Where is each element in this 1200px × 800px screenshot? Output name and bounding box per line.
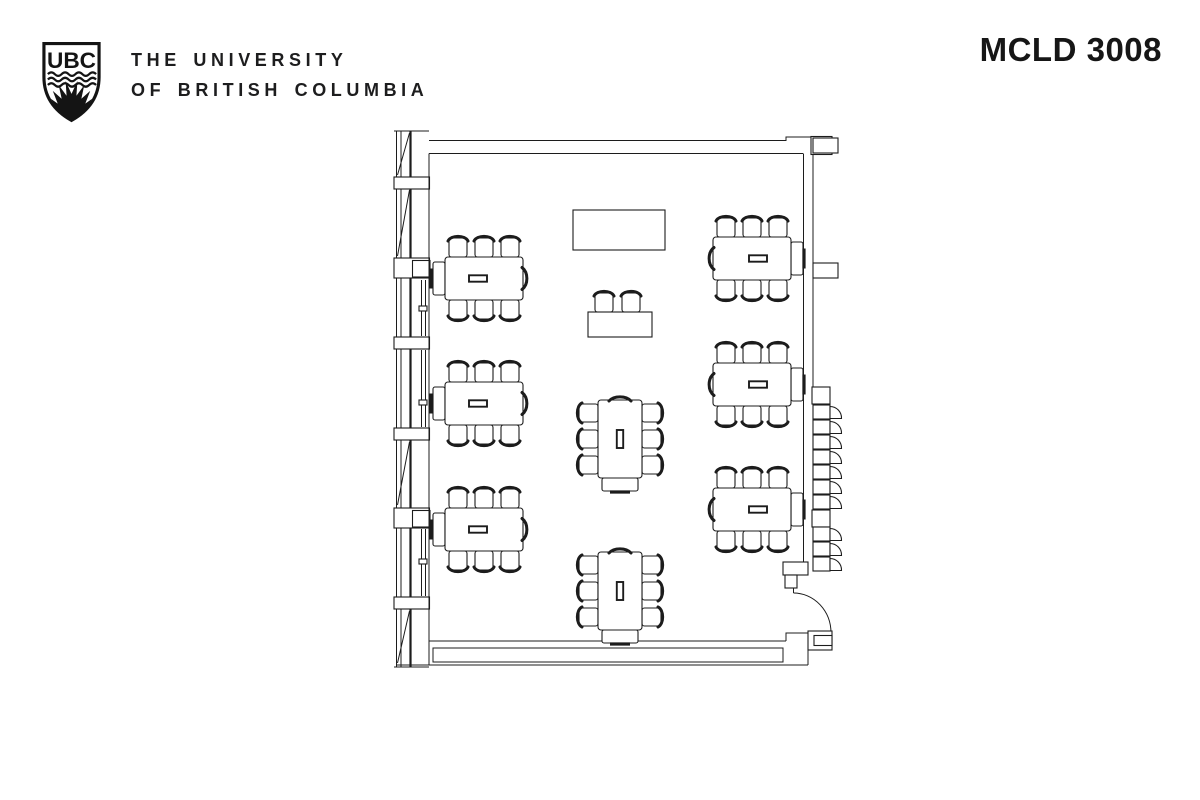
grommet: [469, 526, 487, 532]
chair: [768, 467, 788, 488]
chair: [474, 236, 494, 257]
chair: [500, 300, 520, 321]
chair: [448, 300, 468, 321]
door-threshold: [814, 636, 832, 646]
chair: [742, 531, 762, 552]
logo-monogram: UBC: [47, 48, 96, 73]
entry-door: [783, 562, 832, 650]
chair: [716, 406, 736, 427]
wall-box: [812, 387, 830, 404]
table-right-2: [709, 342, 804, 426]
window-wall: [394, 131, 430, 667]
column: [813, 263, 838, 278]
chair: [642, 429, 663, 449]
table-left-1: [431, 236, 527, 320]
window-operator-box: [413, 511, 431, 528]
chair: [474, 361, 494, 382]
wall-seat: [813, 480, 830, 494]
chair: [642, 555, 663, 575]
table-left-3: [431, 487, 527, 571]
chair: [474, 551, 494, 572]
lectern: [573, 210, 665, 250]
wall-seat: [813, 435, 830, 449]
chair: [742, 280, 762, 301]
grommet: [749, 381, 767, 387]
grommet: [469, 400, 487, 406]
grommet: [749, 255, 767, 261]
grommet: [617, 582, 623, 600]
chair: [742, 406, 762, 427]
chair: [742, 342, 762, 363]
chair: [742, 467, 762, 488]
chair: [642, 581, 663, 601]
wall-seat: [813, 557, 830, 571]
chair: [716, 342, 736, 363]
chair: [716, 216, 736, 237]
table-center-1: [577, 397, 662, 492]
chair: [577, 555, 598, 575]
grommet: [617, 430, 623, 448]
wall-seat: [813, 495, 830, 509]
chair: [500, 361, 520, 382]
chair: [577, 429, 598, 449]
wall-seat-swing: [830, 544, 842, 556]
page: UBC THE UNIVERSITY OF BRITISH COLUMBIA M…: [0, 0, 1200, 800]
chair: [642, 455, 663, 475]
chair: [448, 425, 468, 446]
chair: [500, 487, 520, 508]
chair: [768, 216, 788, 237]
chair: [448, 487, 468, 508]
table-left-2: [431, 361, 527, 445]
chair: [642, 403, 663, 423]
university-name-line2: OF BRITISH COLUMBIA: [131, 75, 428, 105]
chair: [768, 342, 788, 363]
wall-seat-swing: [830, 467, 842, 479]
chair: [448, 361, 468, 382]
chair: [768, 280, 788, 301]
chair: [594, 291, 614, 312]
wall-seat: [813, 527, 830, 541]
wall-box: [812, 510, 830, 527]
grommet: [469, 275, 487, 281]
floor-plan: [390, 125, 850, 675]
furniture-layer: [431, 210, 804, 644]
wall-mounted-seats: [812, 387, 842, 571]
chair: [474, 300, 494, 321]
chair: [474, 487, 494, 508]
room-title: MCLD 3008: [980, 31, 1162, 69]
wall-seat: [813, 405, 830, 419]
wall-seat-swing: [830, 559, 842, 571]
table-right-1: [709, 216, 804, 300]
chair: [621, 291, 641, 312]
chair: [577, 455, 598, 475]
table-right-3: [709, 467, 804, 551]
chair: [742, 216, 762, 237]
window-operator-box: [413, 261, 431, 278]
chair: [768, 406, 788, 427]
chair: [500, 236, 520, 257]
university-name: THE UNIVERSITY OF BRITISH COLUMBIA: [131, 45, 428, 105]
wall-seat: [813, 450, 830, 464]
wall-seat-swing: [830, 421, 842, 433]
grommet: [749, 506, 767, 512]
wall-seat: [813, 465, 830, 479]
chair: [716, 531, 736, 552]
wall-seat-swing: [830, 452, 842, 464]
chair: [577, 403, 598, 423]
door-swing-arc: [794, 593, 832, 633]
university-name-line1: THE UNIVERSITY: [131, 45, 428, 75]
column: [813, 138, 838, 153]
chair: [642, 607, 663, 627]
chair: [474, 425, 494, 446]
door-jamb: [783, 562, 808, 575]
ubc-logo-icon: UBC: [40, 41, 103, 123]
chair: [448, 551, 468, 572]
wall-seat-swing: [830, 437, 842, 449]
chair: [768, 531, 788, 552]
wall-seat-swing: [830, 528, 842, 540]
chair: [500, 551, 520, 572]
wall-seat-swing: [830, 406, 842, 418]
chair: [577, 607, 598, 627]
chair: [448, 236, 468, 257]
wall-seat-swing: [830, 481, 842, 493]
duo-table: [588, 291, 652, 337]
chair: [716, 280, 736, 301]
chair: [500, 425, 520, 446]
wall-seat: [813, 542, 830, 556]
chair: [716, 467, 736, 488]
wall-seat-swing: [830, 497, 842, 509]
table-center-2: [577, 549, 662, 644]
door-jamb: [785, 575, 797, 588]
wall-seat: [813, 420, 830, 434]
chair: [577, 581, 598, 601]
